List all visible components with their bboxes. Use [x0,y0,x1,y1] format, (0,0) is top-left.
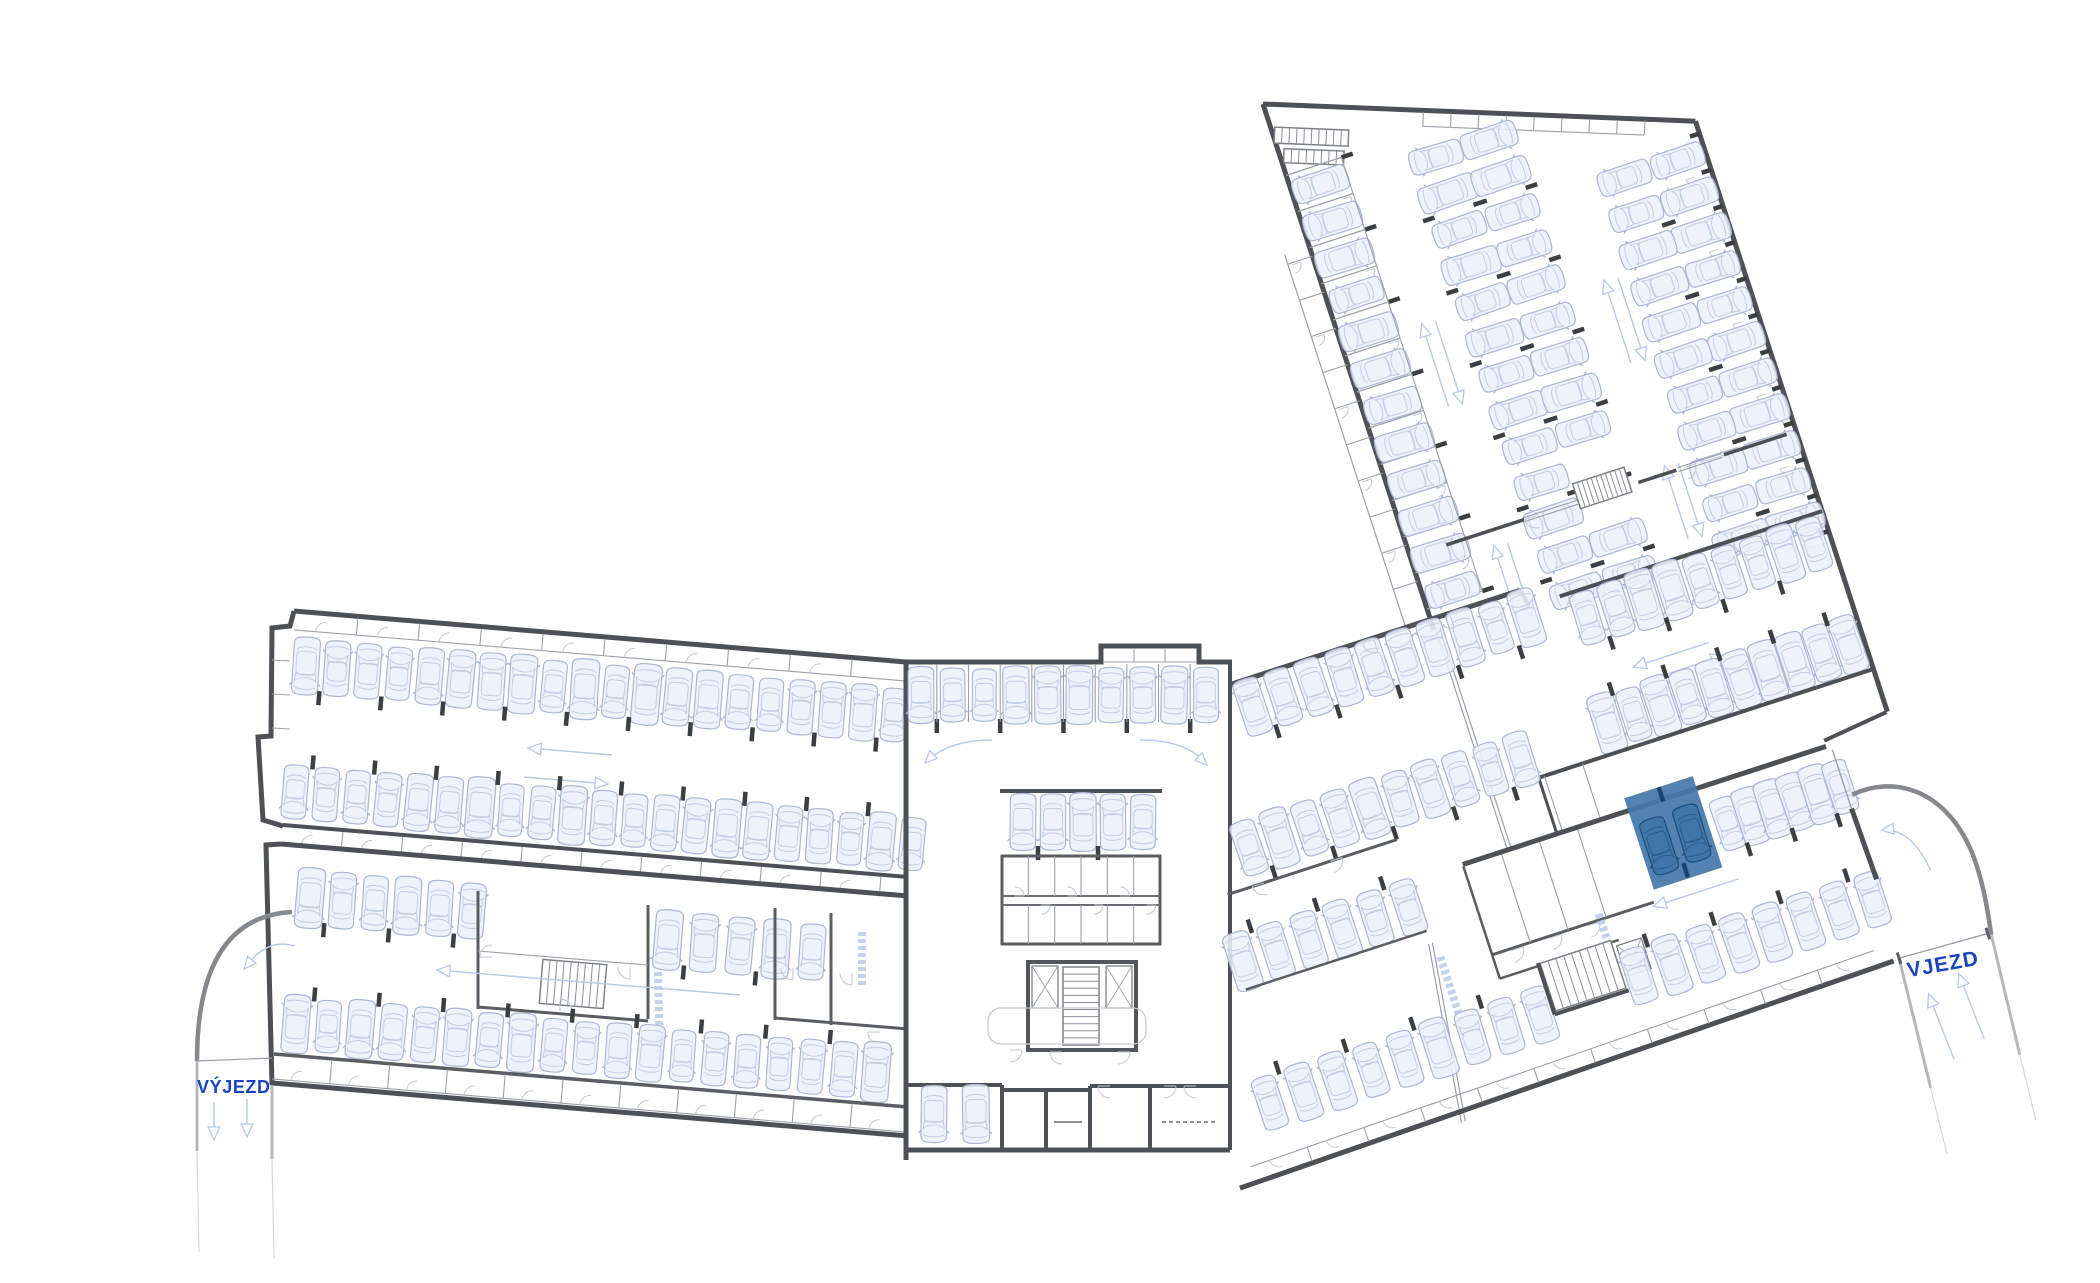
svg-text:VÝJEZD: VÝJEZD [197,1076,271,1097]
